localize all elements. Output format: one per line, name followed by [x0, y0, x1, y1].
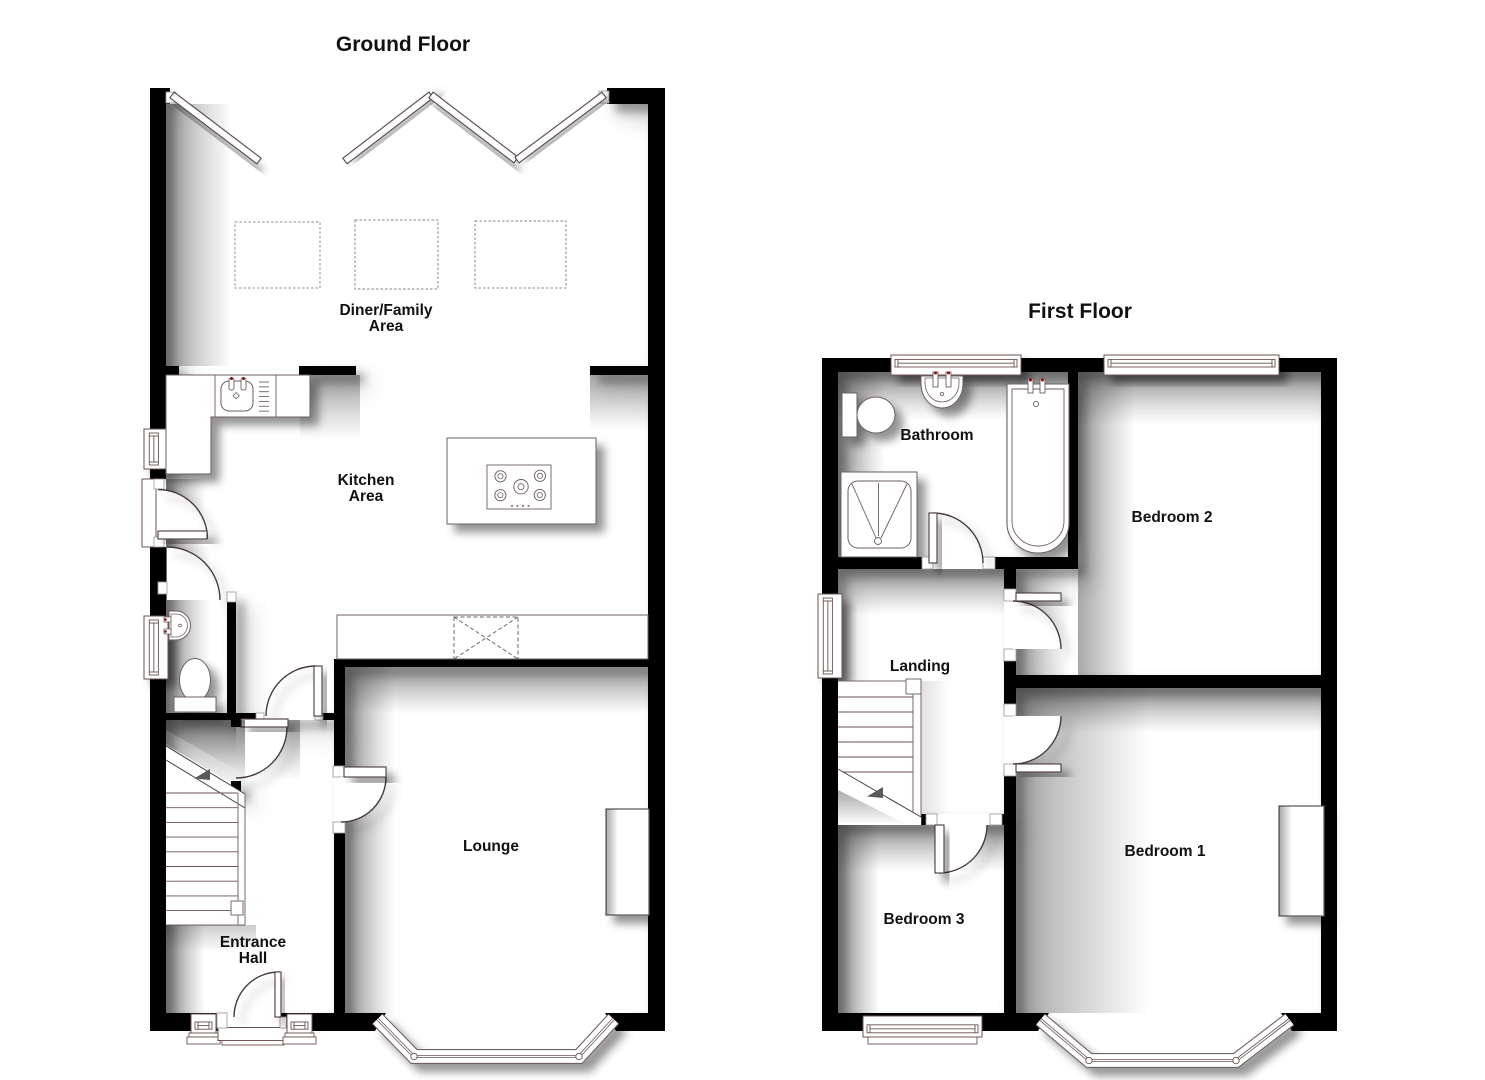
svg-text:Landing: Landing [890, 658, 950, 675]
svg-text:Bedroom 3: Bedroom 3 [884, 911, 965, 928]
svg-text:Hall: Hall [239, 950, 267, 967]
svg-text:Bedroom 1: Bedroom 1 [1125, 843, 1206, 860]
svg-text:First Floor: First Floor [1028, 300, 1132, 323]
svg-text:Diner/Family: Diner/Family [339, 302, 432, 319]
svg-text:Lounge: Lounge [463, 838, 519, 855]
svg-text:Ground Floor: Ground Floor [336, 33, 470, 56]
svg-text:Area: Area [369, 318, 404, 335]
svg-text:Bedroom 2: Bedroom 2 [1132, 509, 1213, 526]
svg-text:Entrance: Entrance [220, 934, 287, 951]
svg-text:Kitchen: Kitchen [338, 472, 395, 489]
svg-text:Area: Area [349, 488, 384, 505]
svg-text:Bathroom: Bathroom [900, 427, 973, 444]
